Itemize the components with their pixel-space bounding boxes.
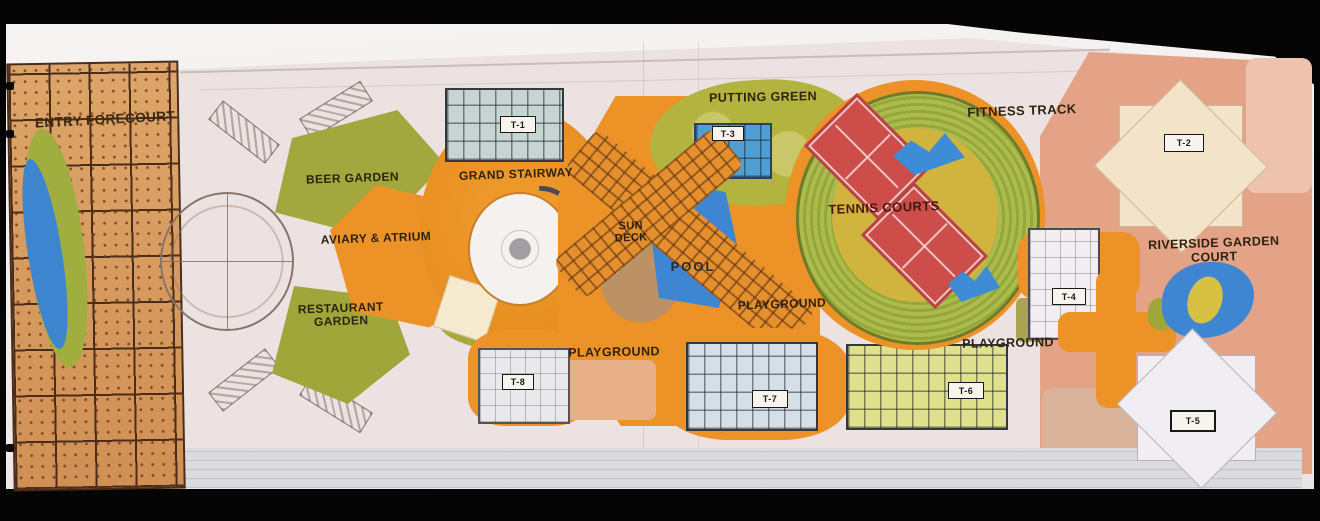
tower-t6-label: T-6: [948, 382, 984, 399]
restaurant-garden-label: RESTAURANT GARDEN: [280, 300, 403, 331]
tower-t8-label: T-8: [502, 374, 534, 390]
tower-t7-building: [686, 342, 818, 431]
tower-t5-building: [1118, 338, 1273, 476]
registration-mark: [6, 82, 14, 90]
tower-t1-label: T-1: [500, 116, 536, 133]
tower-t2-building: [1100, 86, 1260, 244]
site-plan-scan: T-1 T-3 T-2 T-4 T-8 T-7 T-6 T-5 ENTRY FO…: [0, 0, 1320, 521]
lobby-rotunda: [160, 192, 294, 331]
tower-t2-label: T-2: [1164, 134, 1204, 152]
playground-south-surface: [560, 360, 656, 420]
playground-east-label: PLAYGROUND: [942, 335, 1074, 351]
tower-t7-label: T-7: [752, 390, 788, 408]
star-shape-part: [1116, 328, 1276, 488]
playground-south-label: PLAYGROUND: [548, 344, 680, 360]
putting-green-label: PUTTING GREEN: [682, 89, 844, 106]
registration-mark: [6, 130, 14, 138]
pool-label: POOL: [656, 260, 730, 275]
registration-mark: [6, 444, 14, 452]
tower-t5-label: T-5: [1170, 410, 1216, 432]
tower-t3-label: T-3: [712, 126, 744, 141]
tower-t4-label: T-4: [1052, 288, 1086, 305]
sun-deck-label: SUN DECK: [606, 219, 657, 245]
riverside-garden-court-label: RIVERSIDE GARDEN COURT: [1138, 233, 1291, 266]
